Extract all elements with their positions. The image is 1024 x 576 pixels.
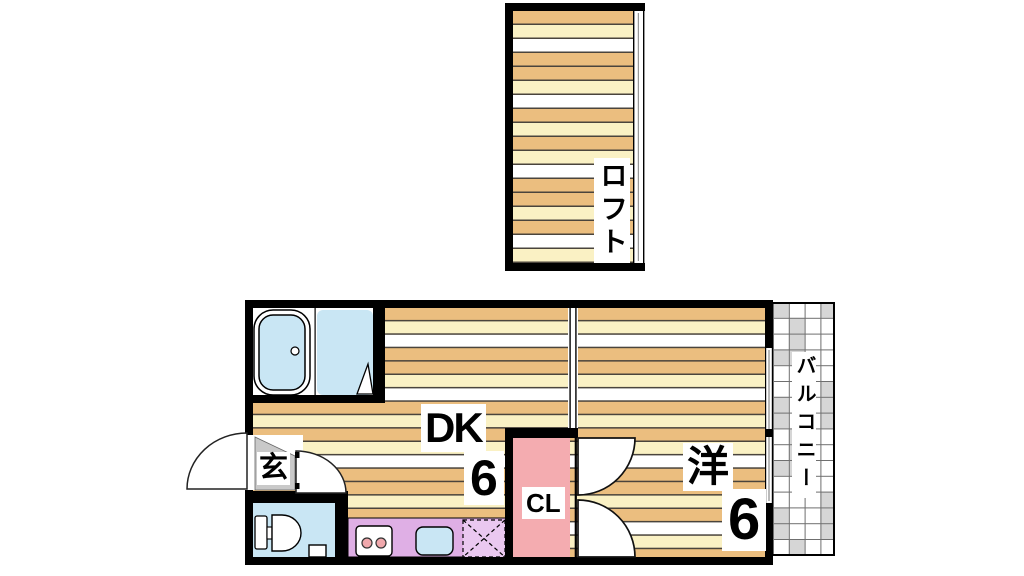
western-room-size: 6: [722, 489, 766, 551]
kitchen-counter: [348, 518, 507, 557]
toilet-bin-icon: [309, 545, 326, 557]
bathroom: [253, 308, 373, 395]
closet-label: CL: [522, 487, 565, 519]
kitchen-sink-icon: [416, 527, 453, 555]
refrigerator-space-icon: [463, 520, 505, 557]
toilet-room: [253, 503, 335, 557]
room-partition: [568, 308, 578, 436]
dining-kitchen-size: 6: [464, 451, 504, 505]
western-room-label: 洋: [683, 443, 733, 491]
floorplan-canvas: ロフト バルコニー DK 6 洋 6 CL 玄: [0, 0, 1024, 576]
loft-window-icon: [633, 11, 645, 263]
loft-label: ロフト: [594, 158, 630, 263]
entrance-label: 玄: [257, 452, 290, 485]
floorplan-drawing: [0, 0, 1024, 576]
toilet-icon: [255, 515, 301, 551]
balcony-window-icon: [765, 348, 773, 503]
entrance-door-icon: [187, 433, 247, 489]
balcony-label: バルコニー: [792, 352, 816, 498]
bathtub-icon: [254, 310, 310, 395]
dining-kitchen-label: DK: [421, 404, 486, 452]
stove-two-burner-icon: [356, 526, 392, 556]
